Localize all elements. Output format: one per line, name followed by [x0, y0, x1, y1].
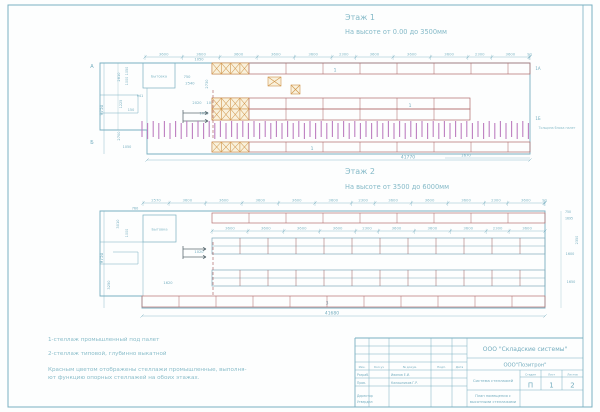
dim: 1650 — [567, 280, 576, 284]
dim-label: 3600 — [196, 52, 206, 57]
floor1-room: Бытовка — [143, 63, 175, 88]
dim-label: 3600 — [271, 52, 281, 57]
dim: 1620 — [163, 281, 173, 285]
dim-label: 2300 — [475, 52, 485, 57]
col-header: Подп. — [437, 365, 446, 369]
floor1-title: Этаж 1 — [345, 13, 375, 22]
dim-label: 3600 — [255, 198, 265, 203]
dim-label: 3600 — [219, 198, 229, 203]
col-header: Дата — [456, 365, 464, 369]
dim: 1000 — [125, 77, 129, 86]
dim-label: 3600 — [521, 198, 531, 203]
sheets-value: 2 — [570, 382, 574, 390]
floor1-overall-width: 41770 — [401, 154, 415, 160]
doc-title-line2: высотными стеллажами — [470, 400, 517, 404]
project-name: Система стеллажей — [473, 378, 514, 383]
sig-role: Директор — [357, 394, 373, 398]
dim-label: 2300 — [358, 198, 368, 203]
floor2-subtitle: На высоте от 3500 до 6000мм — [345, 183, 449, 191]
dim: 2020 — [192, 101, 202, 105]
dim-label: 3600 — [522, 226, 532, 231]
org-name-primary: ООО "Складские системы" — [483, 346, 568, 353]
dim-label: 90 — [542, 198, 547, 203]
dim-label: 3600 — [182, 198, 192, 203]
dim-label: 3600 — [333, 226, 343, 231]
dim: 2350 — [575, 236, 579, 245]
dim: 9750 — [99, 104, 104, 115]
floor1-plan: Этаж 1 На высоте от 0.00 до 3500мм Бытов… — [90, 13, 575, 162]
floor2-room: Бытовка — [143, 215, 176, 242]
dim-label: 3600 — [388, 198, 398, 203]
dim-label: 2300 — [493, 226, 503, 231]
dim-label: 2570 — [151, 198, 161, 203]
title-block: ООО "Складские системы" ООО"Позитрон" Из… — [355, 338, 583, 407]
title-block-columns: Изм. Кол.уч № докум. Подп. Дата — [359, 365, 464, 369]
dim-label: 3600 — [370, 52, 380, 57]
floor1-subtitle: На высоте от 0.00 до 3500мм — [345, 28, 447, 36]
floor2-outline — [100, 211, 545, 308]
dim-label: 3600 — [428, 226, 438, 231]
dim: 760 — [132, 207, 138, 211]
sig-name: Калашников Г.Р. — [391, 381, 418, 385]
floor1-right-note: Толщина блока палет — [538, 126, 576, 130]
dim-label: 3600 — [234, 52, 244, 57]
dim: 750 — [565, 210, 571, 214]
col-header: Кол.уч — [374, 365, 384, 369]
stage-table: Стадия Лист Листов П 1 2 — [525, 373, 578, 390]
sig-role: Разраб. — [357, 373, 369, 377]
floor1-lift-symbols — [268, 77, 300, 94]
dim-label: 3600 — [506, 52, 516, 57]
dim: 9750 — [99, 252, 104, 263]
floor2-mid-dim-chain: 3600360036003600230036003600360023003600 — [210, 226, 546, 235]
dim-label: 90 — [527, 52, 532, 57]
note-line: Красным цветом отображены стеллажи промы… — [48, 367, 247, 373]
axis-label: Б — [90, 140, 94, 146]
stage-value: П — [528, 382, 533, 390]
axis-label: 1Б — [535, 116, 541, 121]
note-line: 2-стеллаж типовой, глубинно выкатной — [48, 350, 167, 357]
sig-role: Утвердил — [357, 400, 373, 404]
dim-label: 3600 — [461, 198, 471, 203]
scanned-drawing-page: Этаж 1 На высоте от 0.00 до 3500мм Бытов… — [0, 0, 600, 412]
title-block-signatures: Разраб. Иванов Е.И. Пров. Калашников Г.Р… — [357, 373, 418, 404]
rack-number: 1 — [311, 146, 314, 152]
dim: 2810 — [117, 72, 121, 82]
sig-role: Пров. — [357, 381, 366, 385]
dim-label: 3600 — [392, 226, 402, 231]
dim-label: 3600 — [425, 198, 435, 203]
floor1-inner-dims: 1050 750 2540 2730 2020 1050 1050 — [184, 58, 217, 116]
rack-number: 1 — [409, 103, 412, 109]
dim: 1600 — [566, 252, 575, 256]
dim-label: 3600 — [159, 52, 169, 57]
dim: 1670 — [461, 153, 471, 158]
dim-label: 2300 — [491, 198, 501, 203]
sig-name: Иванов Е.И. — [391, 373, 410, 377]
col-header: Изм. — [359, 365, 366, 369]
dim-label: 3600 — [463, 226, 473, 231]
floor2-title: Этаж 2 — [345, 167, 375, 176]
drawing-notes: 1-стеллаж промышленный под палет 2-стелл… — [48, 336, 247, 381]
dim-label: 3600 — [444, 52, 454, 57]
note-line: 1-стеллаж промышленный под палет — [48, 336, 160, 343]
dim: 2700 — [117, 131, 121, 141]
sheet-header: Лист — [548, 373, 555, 377]
dim: 1225 — [119, 100, 123, 109]
dim: 150 — [128, 108, 134, 112]
floor2-overall-width: 41680 — [325, 310, 339, 316]
doc-title-line1: План помещения с — [475, 394, 511, 398]
dim: 3010 — [116, 219, 120, 229]
floor1-left-dims: 9750 2810 1050 1000 941 1225 150 2700 10… — [99, 63, 143, 154]
floor1-right-dim: 1670 — [445, 153, 530, 159]
dim: 1000 — [125, 229, 129, 238]
note-line: ют функцию опорных стеллажей на обоих эт… — [48, 374, 200, 381]
dim: 1695 — [565, 217, 573, 221]
room-label: Бытовка — [151, 75, 167, 79]
drawing-sheet: Этаж 1 На высоте от 0.00 до 3500мм Бытов… — [0, 0, 600, 412]
dim: 1050 — [194, 58, 204, 62]
floor2-top-dim-chain: 2570360036003600360036002300360036003600… — [141, 198, 547, 207]
rack-number: 1 — [334, 68, 337, 74]
sheets-header: Листов — [567, 373, 578, 377]
stage-header: Стадия — [525, 373, 536, 377]
dim: 3250 — [107, 280, 111, 290]
dim: 1050 — [125, 67, 129, 76]
dim-label: 3600 — [407, 52, 417, 57]
floor2-plan: Этаж 2 На высоте от 3500 до 6000мм Бытов… — [99, 167, 579, 318]
col-header: № докум. — [403, 365, 417, 369]
axis-label: А — [90, 64, 94, 70]
room-label: Бытовка — [151, 228, 167, 232]
dim-label: 3600 — [292, 198, 302, 203]
org-name-secondary: ООО"Позитрон" — [503, 363, 546, 369]
dim: 2540 — [185, 82, 195, 86]
dim-label: 2300 — [362, 226, 372, 231]
floor2-bottom-dim: 41680 — [140, 310, 546, 317]
sheet-value: 1 — [549, 382, 553, 390]
floor2-right-dims: 750 1695 2350 1600 1650 — [561, 210, 579, 308]
dim-label: 3600 — [225, 226, 235, 231]
dim-label: 3600 — [308, 52, 318, 57]
dim: 941 — [137, 94, 143, 98]
dim: 2730 — [205, 79, 209, 89]
dim: 750 — [184, 75, 192, 79]
dim: 1020 — [194, 250, 204, 254]
axis-label: 1А — [535, 66, 541, 71]
dim: 1050 — [123, 145, 132, 149]
dim-label: 3600 — [297, 226, 307, 231]
dim-label: 2300 — [339, 52, 349, 57]
floor2-rack-rows: 3 — [142, 213, 545, 307]
dim-label: 3600 — [328, 198, 338, 203]
dim-label: 3600 — [261, 226, 271, 231]
